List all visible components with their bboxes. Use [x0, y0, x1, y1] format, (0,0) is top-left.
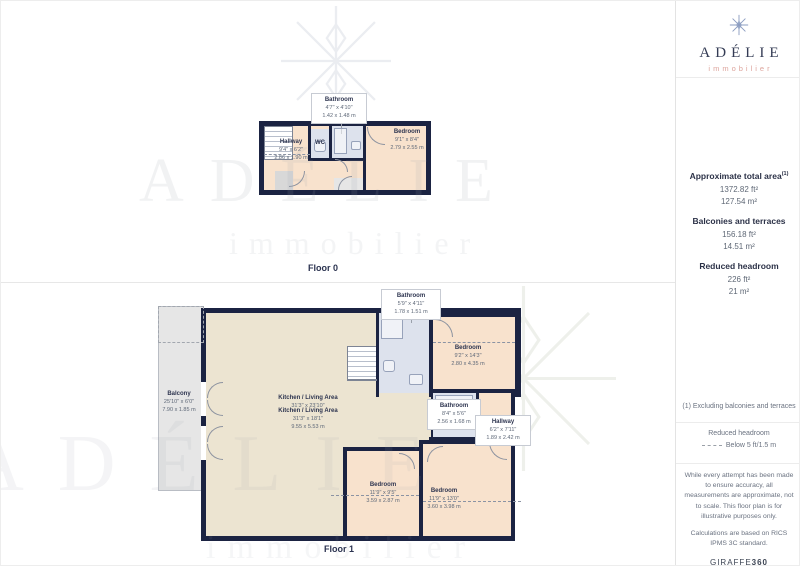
floor1-bathroom-callout: Bathroom 5'9" x 4'11" 1.78 x 1.51 m — [381, 289, 441, 320]
floor1-bedroom-tr-label: Bedroom 9'2" x 14'3" 2.80 x 4.35 m — [451, 344, 484, 369]
floor1-kitchen-b-name: Kitchen / Living Area — [278, 407, 337, 416]
total-area-ft: 1372.82 ft² — [676, 185, 800, 194]
floor1-wall-under-bed-tr — [429, 389, 517, 393]
snowflake-logo-icon — [728, 13, 750, 37]
floor1-balcony-metric: 7.90 x 1.85 m — [162, 407, 195, 415]
floor1-bedroom-tr-imperial: 9'2" x 14'3" — [451, 353, 484, 361]
floor0-bathroom-metric: 1.42 x 1.48 m — [315, 113, 363, 121]
floor0-wc-name: WC — [315, 139, 325, 148]
total-area-heading: Approximate total area(1) — [676, 171, 800, 181]
footnote-text: (1) Excluding balconies and terraces — [682, 403, 795, 410]
floor1-hallway-metric: 1.89 x 2.42 m — [479, 435, 527, 443]
total-area-m: 127.54 m² — [676, 197, 800, 206]
floor0-section: Bathroom 4'7" x 4'10" 1.42 x 1.48 m — [1, 1, 675, 283]
floor1-bathroom-mid-name: Bathroom — [431, 402, 477, 411]
floor1-wall-bl-br — [419, 440, 423, 536]
floor1-hallway-imperial: 6'2" x 7'11" — [479, 427, 527, 435]
floor0-wc-label: WC — [315, 139, 325, 148]
floor1-bedroom-br-metric: 3.60 x 3.98 m — [427, 504, 460, 512]
floor1-french-door-gap-2 — [201, 426, 206, 460]
brand-subtitle: immobilier — [676, 64, 800, 73]
floor1-balcony-name: Balcony — [162, 390, 195, 399]
total-area-footnote-marker: (1) — [782, 171, 789, 177]
floor1-bathroom-mid-imperial: 8'4" x 5'6" — [431, 411, 477, 419]
floor1-bedroom-bl-name: Bedroom — [366, 481, 399, 490]
giraffe360-logo: GIRAFFE360 — [683, 557, 795, 566]
floor1-kitchen-label-b: Kitchen / Living Area 31'3" x 18'1" 9.55… — [278, 407, 337, 432]
giraffe-360: 360 — [752, 558, 768, 566]
plans-area: ADÉLIE immobilier ADÉLIE immobilier Bath… — [1, 1, 675, 566]
floor0-bedroom-label: Bedroom 9'1" x 8'4" 2.79 x 2.55 m — [390, 128, 423, 153]
floor1-kitchen-b-metric: 9.55 x 5.53 m — [278, 424, 337, 432]
floor1-wall-stairs-right — [376, 313, 379, 397]
floor1-bedroom-tr-metric: 2.80 x 4.35 m — [451, 361, 484, 369]
headroom-legend: Reduced headroom Below 5 ft/1.5 m — [676, 422, 800, 464]
floor1-balcony-label: Balcony 25'10" x 6'0" 7.90 x 1.85 m — [162, 390, 195, 415]
floor0-hallway-imperial: 9'4" x 6'2" — [274, 147, 307, 155]
floor0-hallway-name: Hallway — [274, 138, 307, 147]
area-summary: Approximate total area(1) 1372.82 ft² 12… — [676, 161, 800, 299]
floor1-bedroom-br-imperial: 11'9" x 13'0" — [427, 496, 460, 504]
total-area-label: Approximate total area — [690, 171, 782, 181]
floor0-sink — [351, 141, 361, 150]
floor1-balcony-dashed-top — [158, 306, 204, 343]
floor1-kitchen-b-imperial: 31'3" x 18'1" — [278, 416, 337, 424]
brand-logo: ADÉLIE immobilier — [676, 1, 800, 78]
floor0-hallway-label: Hallway 9'4" x 6'2" 2.86 x 1.90 m — [274, 138, 307, 163]
floor0-bedroom-metric: 2.79 x 2.55 m — [390, 145, 423, 153]
floor0-bedroom-imperial: 9'1" x 8'4" — [390, 137, 423, 145]
floor0-bedroom-name: Bedroom — [390, 128, 423, 137]
floor1-toilet-top — [383, 360, 395, 372]
sidebar: ADÉLIE immobilier Approximate total area… — [675, 1, 800, 566]
disclaimer-text-1: While every attempt has been made to ens… — [683, 471, 795, 522]
disclaimer-text-2: Calculations are based on RICS IPMS 3C s… — [683, 529, 795, 549]
legend-item: Below 5 ft/1.5 m — [676, 442, 800, 449]
floor1-wall-living-beds — [343, 447, 347, 536]
balconies-heading: Balconies and terraces — [676, 216, 800, 226]
reduced-heading: Reduced headroom — [676, 261, 800, 271]
floor1-sink-top — [409, 374, 423, 385]
floor0-label: Floor 0 — [308, 263, 338, 273]
floor1-bathroom-metric: 1.78 x 1.51 m — [385, 309, 437, 317]
floor1-balcony-imperial: 25'10" x 6'0" — [162, 399, 195, 407]
reduced-m: 21 m² — [676, 287, 800, 296]
giraffe-text: GIRAFFE — [710, 558, 752, 566]
floor0-hallway-metric: 2.86 x 1.90 m — [274, 155, 307, 163]
floor1-kitchen-a-name: Kitchen / Living Area — [278, 394, 337, 403]
floor1-wall-br-top — [423, 440, 457, 444]
reduced-ft: 226 ft² — [676, 275, 800, 284]
floor1-bathroom-mid-label: Bathroom 8'4" x 5'6" 2.56 x 1.68 m — [427, 399, 481, 430]
floor1-wall-bed-bl-top — [343, 447, 419, 451]
dashed-line-icon — [702, 445, 722, 446]
floor1-wall-stairs-bottom — [347, 379, 377, 381]
floor1-bathroom-mid-metric: 2.56 x 1.68 m — [431, 419, 477, 427]
floor0-bathroom-callout: Bathroom 4'7" x 4'10" 1.42 x 1.48 m — [311, 93, 367, 124]
floor1-bedroom-tr-name: Bedroom — [451, 344, 484, 353]
legend-title: Reduced headroom — [676, 430, 800, 437]
floor0-bathtub — [334, 128, 347, 154]
floor0-bathroom-name: Bathroom — [315, 96, 363, 105]
floor1-bedroom-bl-metric: 3.59 x 2.87 m — [366, 498, 399, 506]
floorplan-page: ADÉLIE immobilier ADÉLIE immobilier Bath… — [0, 0, 800, 566]
floor1-headroom-dash-tr — [433, 342, 515, 343]
floor1-section: Bathroom 5'9" x 4'11" 1.78 x 1.51 m — [1, 282, 675, 566]
floor1-hallway-label: Hallway 6'2" x 7'11" 1.89 x 2.42 m — [475, 415, 531, 446]
floor1-stairs — [347, 346, 377, 380]
floor1-bedroom-bl-imperial: 11'9" x 9'5" — [366, 490, 399, 498]
floor1-bedroom-br-name: Bedroom — [427, 487, 460, 496]
floor1-bathroom-name: Bathroom — [385, 292, 437, 301]
footnote: (1) Excluding balconies and terraces — [676, 390, 800, 423]
balconies-m: 14.51 m² — [676, 242, 800, 251]
floor1-french-door-gap-1 — [201, 382, 206, 416]
legend-item-text: Below 5 ft/1.5 m — [726, 442, 776, 449]
floor0-bathroom-imperial: 4'7" x 4'10" — [315, 105, 363, 113]
brand-name: ADÉLIE — [676, 45, 800, 62]
floor1-hallway-name: Hallway — [479, 418, 527, 427]
disclaimer: While every attempt has been made to ens… — [676, 463, 800, 566]
floor1-label: Floor 1 — [324, 544, 354, 554]
floor1-wall-bath-bed — [429, 313, 433, 397]
floor1-bathroom-imperial: 5'9" x 4'11" — [385, 301, 437, 309]
balconies-ft: 156.18 ft² — [676, 230, 800, 239]
floor1-bedroom-bl-label: Bedroom 11'9" x 9'5" 3.59 x 2.87 m — [366, 481, 399, 506]
floor1-bedroom-br-label: Bedroom 11'9" x 13'0" 3.60 x 3.98 m — [427, 487, 460, 512]
